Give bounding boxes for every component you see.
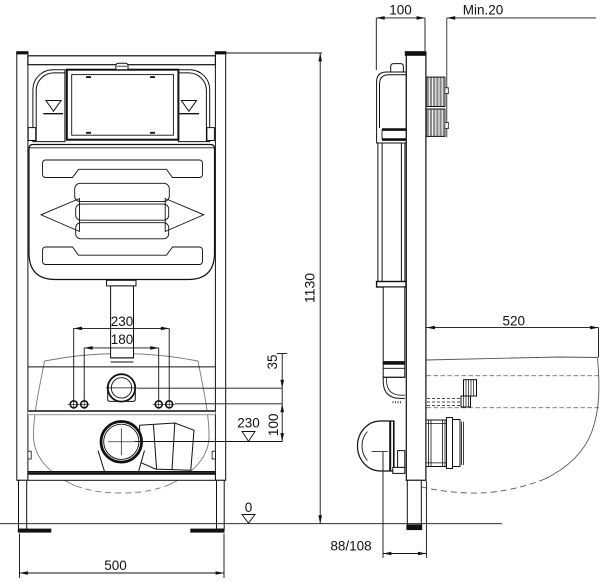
- svg-text:230: 230: [237, 416, 260, 431]
- svg-text:100: 100: [266, 414, 281, 437]
- svg-text:1130: 1130: [302, 273, 318, 303]
- svg-text:35: 35: [265, 354, 280, 369]
- svg-text:500: 500: [104, 558, 127, 573]
- svg-text:100: 100: [389, 3, 412, 18]
- svg-text:88/108: 88/108: [330, 539, 371, 554]
- svg-text:Min.20: Min.20: [463, 3, 504, 18]
- svg-text:180: 180: [111, 332, 134, 347]
- svg-text:0: 0: [245, 500, 253, 515]
- svg-text:230: 230: [111, 314, 134, 329]
- svg-text:520: 520: [503, 314, 526, 329]
